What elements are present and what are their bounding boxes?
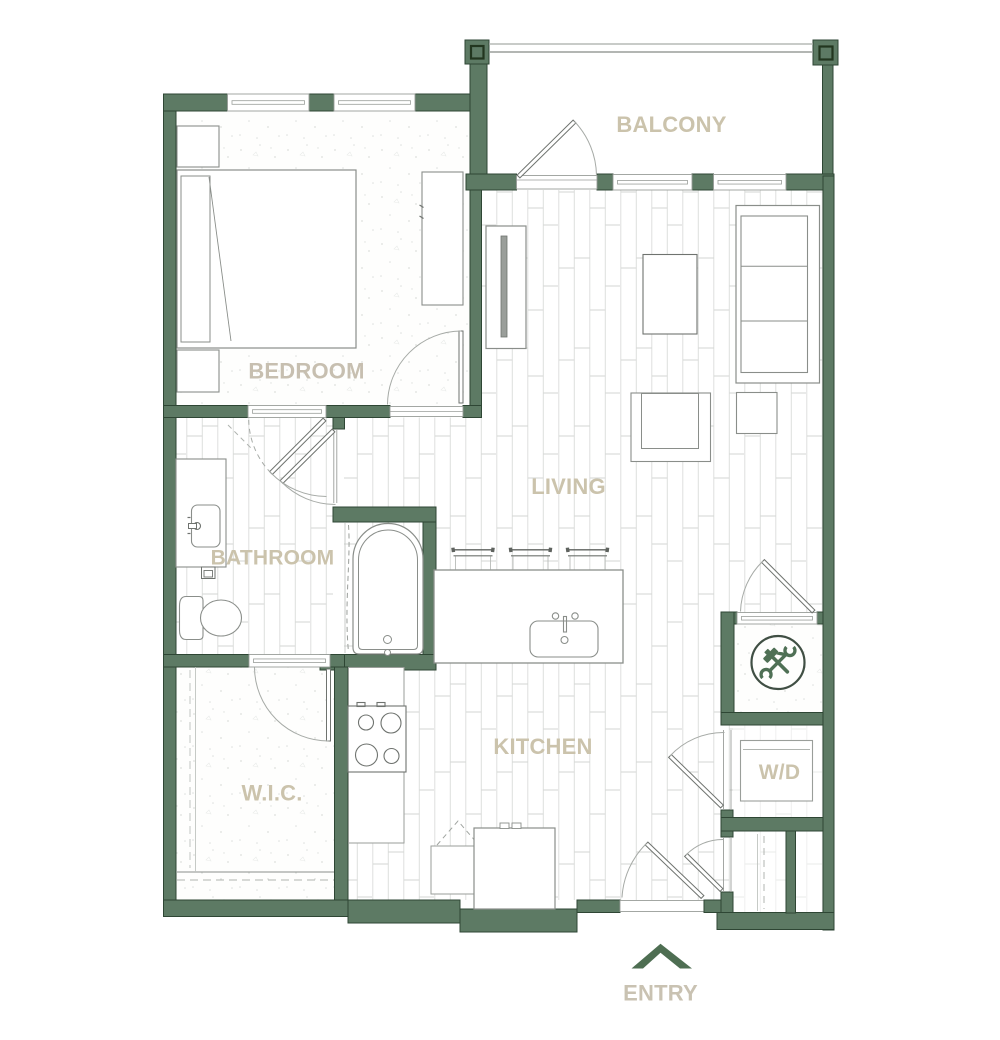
svg-text:BEDROOM: BEDROOM [248, 359, 364, 384]
svg-text:ENTRY: ENTRY [623, 981, 698, 1006]
svg-text:W.I.C.: W.I.C. [241, 781, 302, 806]
svg-text:KITCHEN: KITCHEN [493, 734, 592, 759]
svg-text:BATHROOM: BATHROOM [211, 547, 335, 570]
svg-text:BALCONY: BALCONY [616, 112, 726, 137]
svg-text:LIVING: LIVING [531, 474, 606, 499]
svg-text:W/D: W/D [759, 761, 800, 784]
